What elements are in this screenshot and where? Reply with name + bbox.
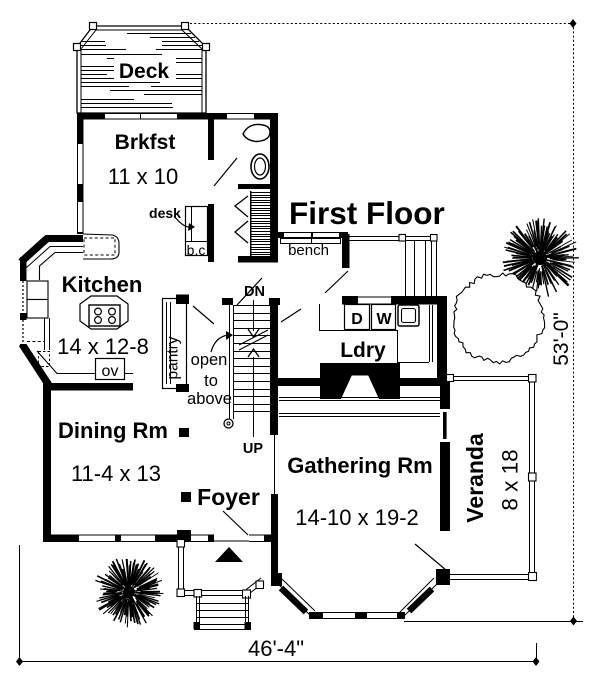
svg-text:Ldry: Ldry (340, 339, 386, 362)
svg-text:UP: UP (243, 441, 263, 457)
svg-text:11-4 x 13: 11-4 x 13 (71, 461, 161, 486)
svg-text:46'-4": 46'-4" (248, 636, 304, 661)
svg-text:Brkfst: Brkfst (115, 131, 176, 154)
svg-text:W: W (376, 311, 392, 328)
svg-text:Dining Rm: Dining Rm (58, 418, 168, 443)
svg-text:14-10 x 19-2: 14-10 x 19-2 (295, 505, 419, 530)
svg-text:desk: desk (149, 205, 181, 221)
svg-text:D: D (351, 311, 363, 328)
svg-text:Deck: Deck (119, 60, 170, 83)
svg-text:bench: bench (288, 242, 329, 259)
svg-text:First Floor: First Floor (289, 195, 445, 231)
svg-text:14 x 12-8: 14 x 12-8 (57, 334, 149, 359)
svg-text:open: open (191, 351, 228, 369)
svg-text:ov: ov (102, 363, 119, 380)
svg-text:b.c: b.c (187, 242, 206, 258)
svg-text:Kitchen: Kitchen (62, 272, 143, 297)
svg-text:above: above (187, 390, 232, 408)
svg-text:Gathering Rm: Gathering Rm (287, 453, 432, 478)
svg-text:8 x 18: 8 x 18 (498, 449, 523, 510)
svg-text:pantry: pantry (165, 336, 182, 379)
svg-text:53'-0": 53'-0" (550, 312, 573, 366)
svg-text:Veranda: Veranda (462, 433, 488, 523)
svg-text:11 x 10: 11 x 10 (108, 164, 179, 189)
svg-text:to: to (204, 372, 218, 390)
svg-text:Foyer: Foyer (197, 484, 260, 510)
